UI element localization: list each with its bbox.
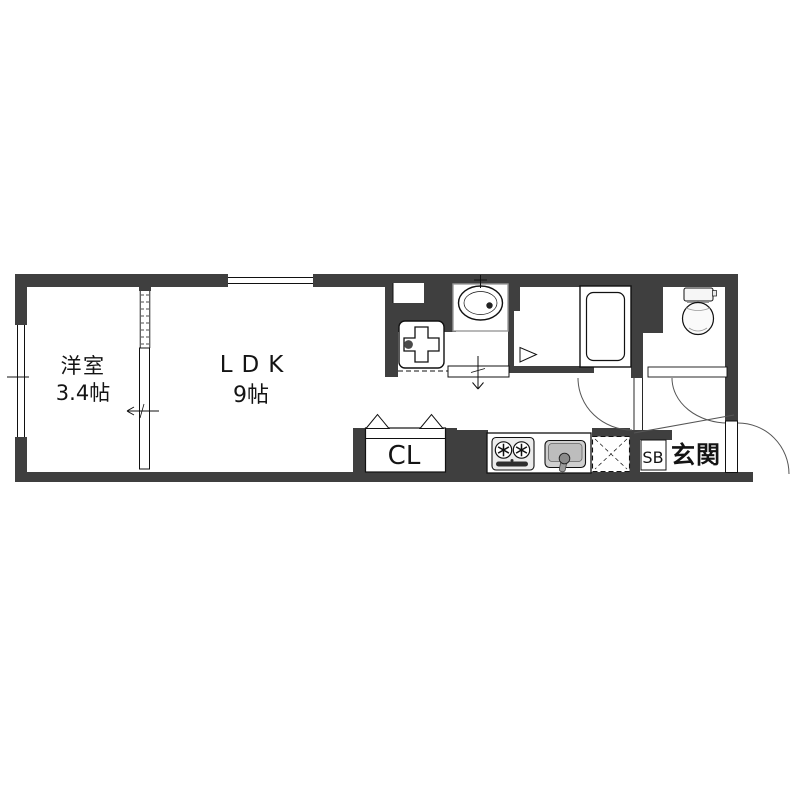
window-left [7,325,29,437]
floor-plan-page: 洋室 3.4帖 LDK 9帖 CL SB 玄関 [0,0,800,800]
entrance-label: 玄関 [671,441,721,469]
bedroom-size-label: 3.4帖 [56,381,110,405]
ldk-size-label: 9帖 [233,383,269,408]
pipe-space-notch [393,283,424,303]
gas-stove-icon [492,438,534,471]
bathtub-icon [580,286,631,367]
kitchen-counter [487,433,591,473]
hall-door [578,378,643,430]
bath-folding-door-icon [520,348,537,363]
kitchen-sink-icon [545,441,586,473]
toilet-door [648,367,728,423]
ldk-label: LDK [220,352,293,378]
entrance-door [726,421,790,474]
refrigerator-space-icon [593,437,630,472]
shoe-box-label: SB [642,448,663,467]
washing-machine-pan-icon [399,321,444,368]
genkan-step-line [634,415,734,433]
closet-label: CL [388,441,421,471]
toilet-icon [683,288,717,335]
window-top [228,274,313,287]
bedroom-label: 洋室 [61,354,106,378]
floor-plan: 洋室 3.4帖 LDK 9帖 CL SB 玄関 [0,0,800,800]
bedroom-sliding-door [127,291,159,469]
wash-basin-icon [453,275,508,331]
